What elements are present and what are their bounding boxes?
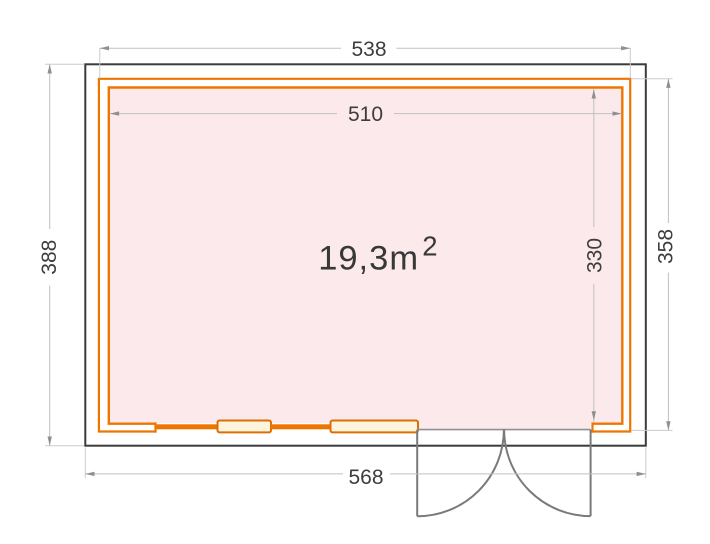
svg-text:538: 538 — [351, 38, 386, 61]
svg-text:358: 358 — [655, 229, 678, 264]
svg-text:510: 510 — [348, 103, 383, 126]
svg-text:568: 568 — [348, 466, 383, 489]
svg-text:330: 330 — [584, 238, 607, 273]
svg-text:388: 388 — [38, 240, 61, 275]
